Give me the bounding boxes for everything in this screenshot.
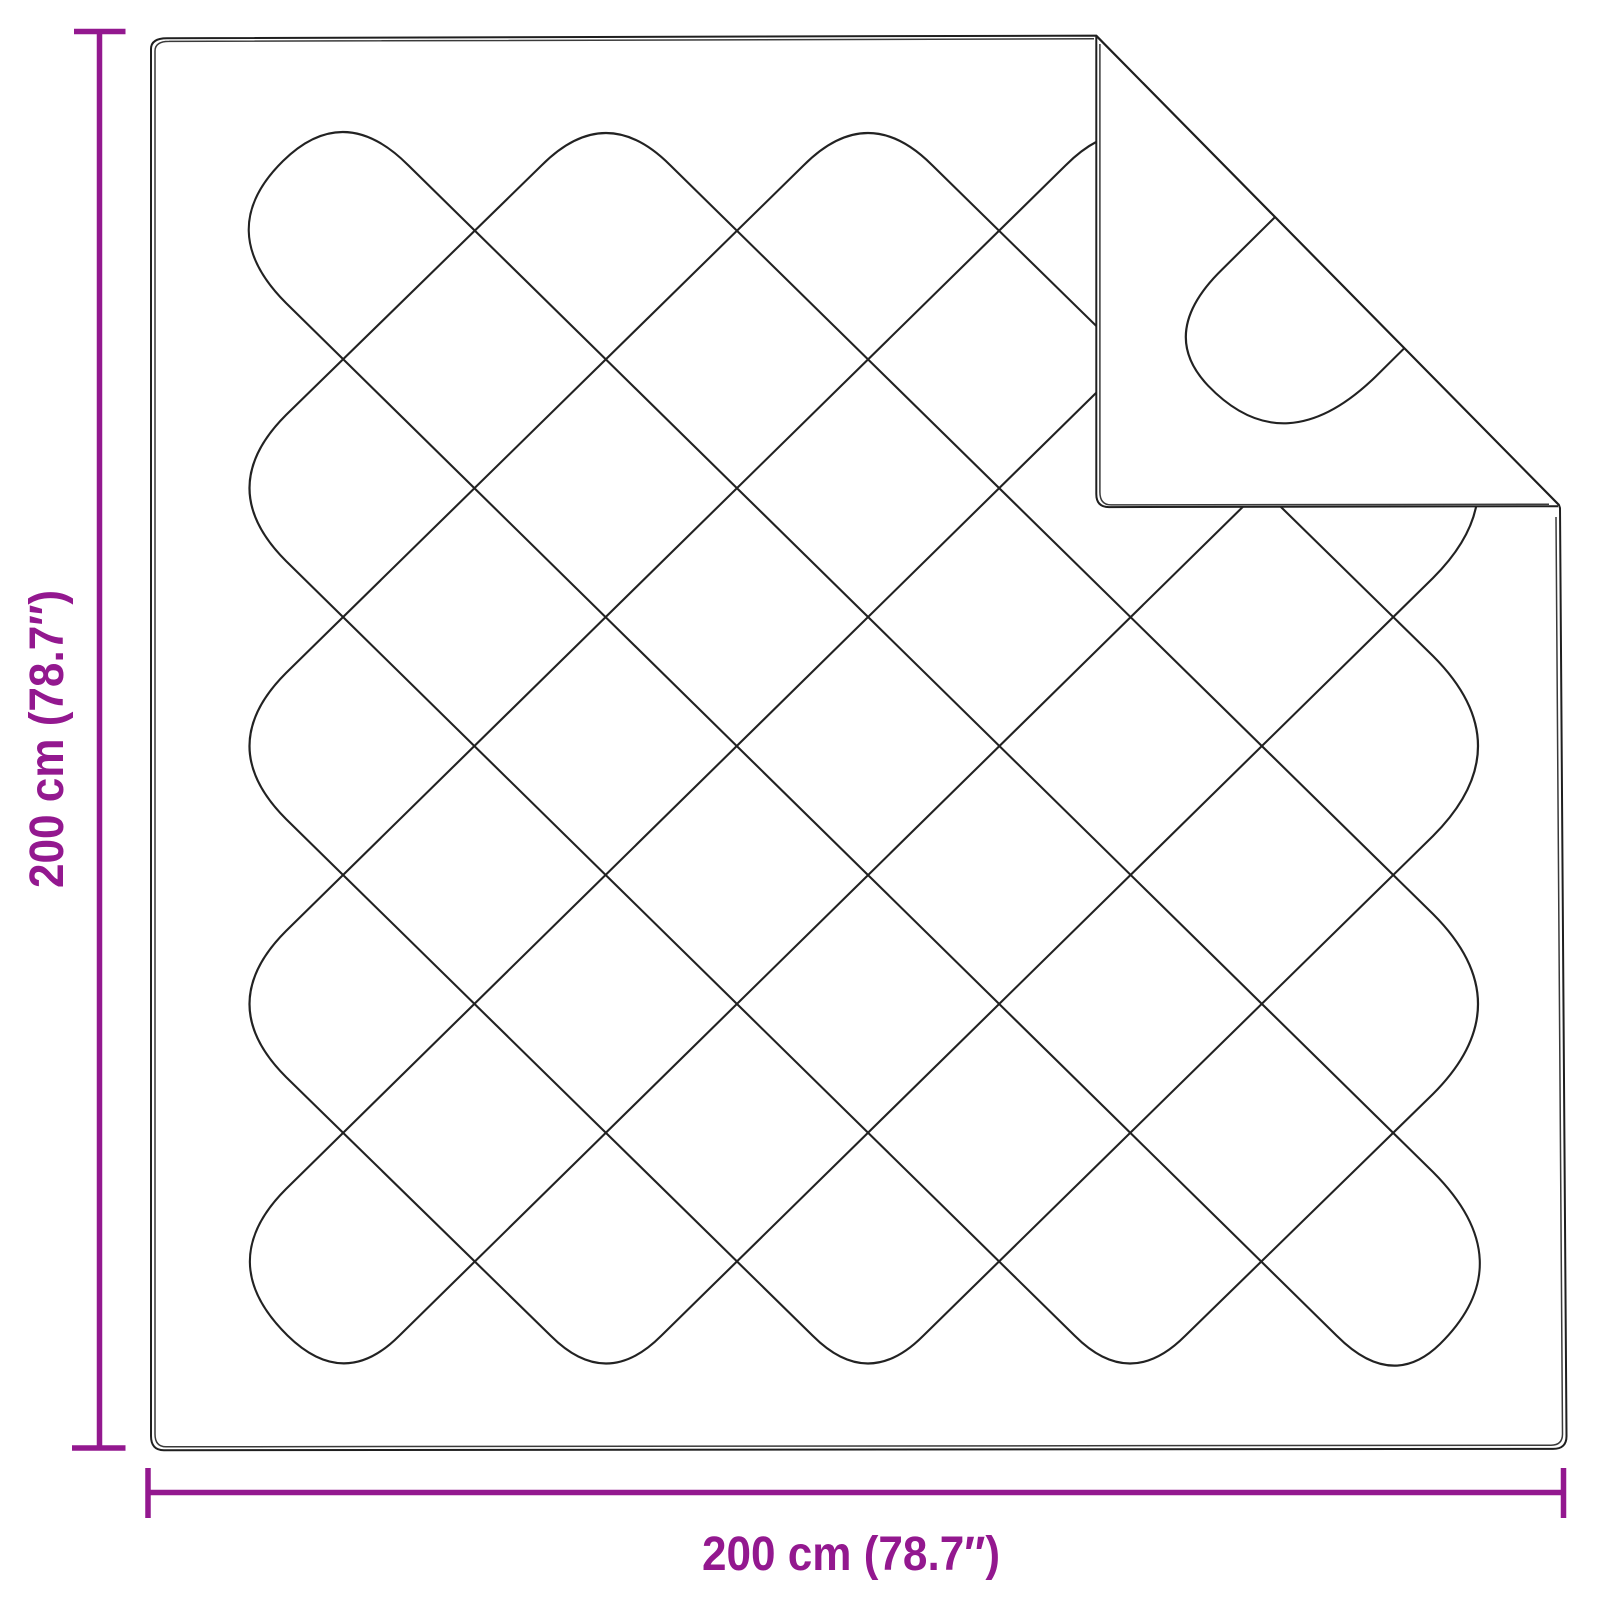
- svg-text:200 cm (78.7″): 200 cm (78.7″): [21, 590, 74, 888]
- svg-text:200 cm (78.7″): 200 cm (78.7″): [702, 1528, 1000, 1581]
